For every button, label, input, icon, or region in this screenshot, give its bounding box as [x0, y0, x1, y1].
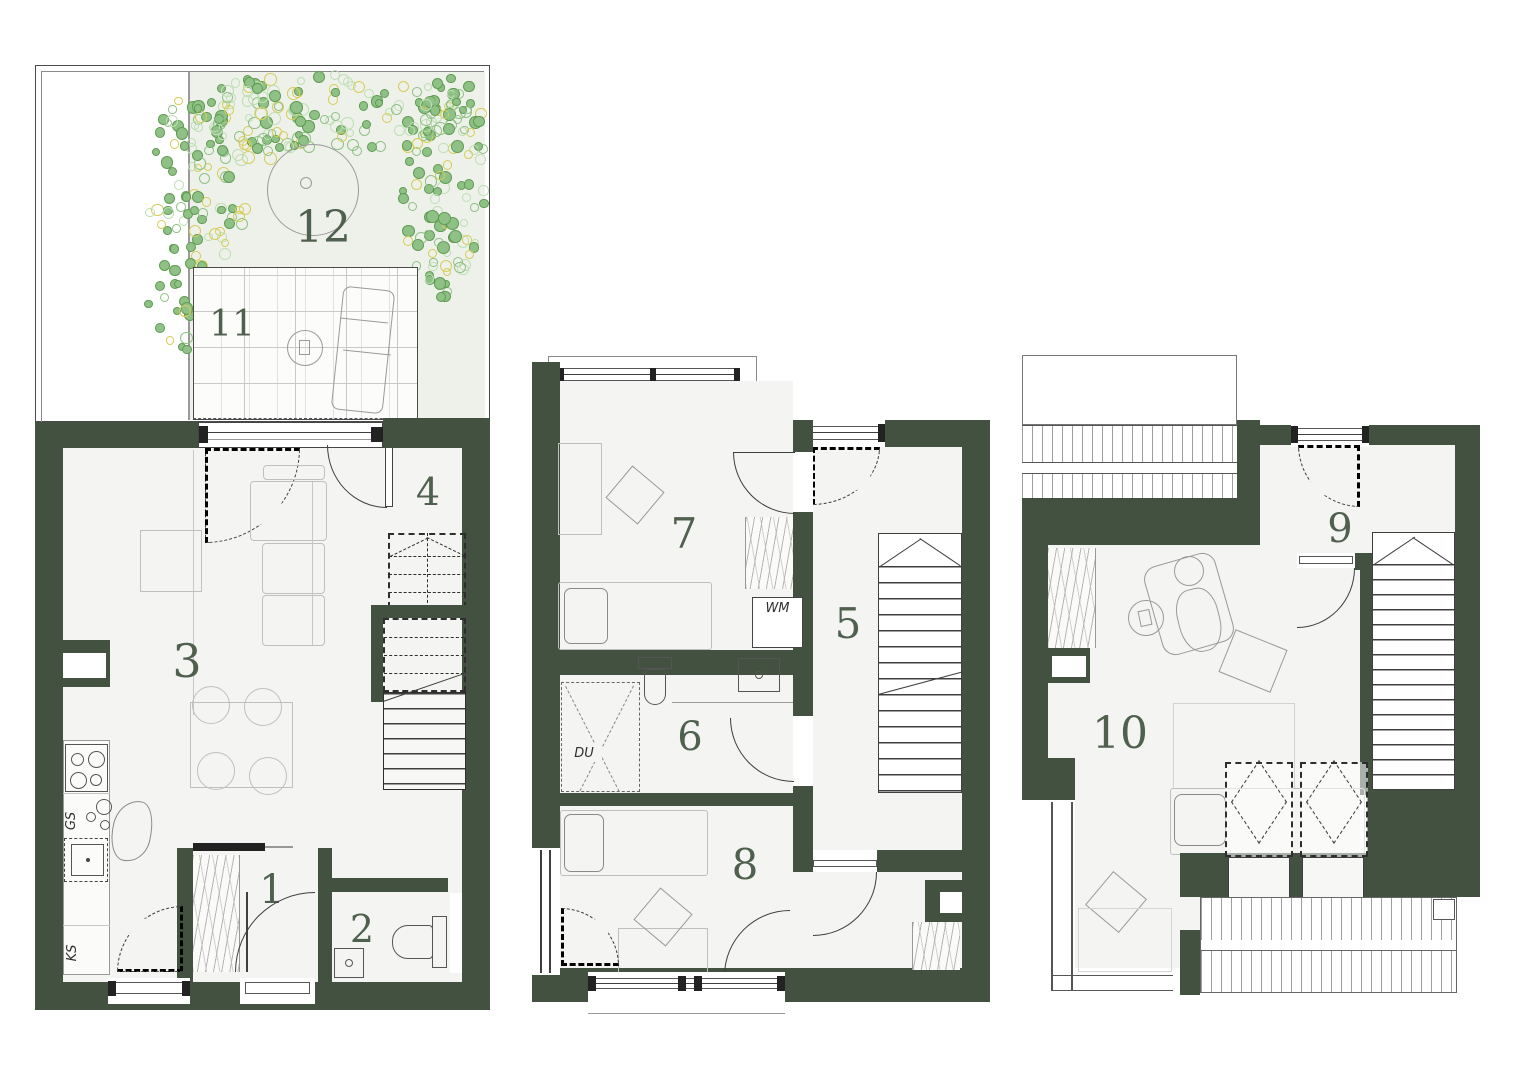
- stair-upper-tread-2: [389, 574, 465, 575]
- sf-stairs-left-wall: [1360, 562, 1372, 795]
- label-dishwasher: GS: [54, 803, 88, 839]
- label-shower: DU: [566, 744, 602, 762]
- sf-room9-window-midline: [1297, 434, 1363, 435]
- sf-bottom-left-wall-bit: [1180, 930, 1200, 995]
- label-room-7: 7: [668, 508, 700, 560]
- label-room-12: 12: [292, 203, 354, 253]
- floor-plan-drawing: 12 11 4 GS KS: [0, 0, 1529, 1080]
- label-room-2: 2: [348, 906, 376, 952]
- sf-left-wall: [1022, 500, 1048, 800]
- stair-lower-dtread-2: [384, 655, 464, 656]
- dining-chair-1: [192, 686, 230, 724]
- dining-chair-2: [244, 688, 282, 726]
- mf-room8-pillow: [564, 814, 604, 872]
- sf-right-wall: [1455, 425, 1480, 897]
- mf-stairs-treads: [879, 566, 961, 792]
- sf-balcony-rail-2: [1071, 802, 1073, 990]
- kitchen-counter-div-2: [63, 925, 110, 926]
- stair-lower-dtread-1: [384, 637, 464, 638]
- wc-sink-drain: [345, 959, 353, 967]
- mf-toilet-tank: [638, 657, 672, 669]
- stair-upper-tread-3: [389, 592, 465, 593]
- wc-right-niche: [450, 893, 462, 973]
- mf-toilet-bowl: [644, 669, 666, 705]
- sofa-cushion-1: [262, 543, 325, 594]
- sofa-back-line: [312, 482, 313, 645]
- sf-room10-wardrobe: [1048, 548, 1096, 648]
- mf-room8-wardrobe: [912, 922, 960, 970]
- hall-wardrobe: [193, 855, 240, 972]
- mf-wall-room6-bottom: [560, 793, 810, 806]
- mf-right-wall: [962, 420, 990, 1002]
- wall-above-room-4: [383, 418, 490, 448]
- sf-roof-bottom-band-2: [1201, 950, 1456, 992]
- mf-room5-window-block-r: [878, 424, 885, 442]
- mf-french-window-line-1: [540, 850, 542, 973]
- sofa-headrest: [263, 465, 325, 480]
- terrace-door-glazing-line2: [200, 439, 381, 440]
- sf-balcony-bottom-line-1: [1051, 975, 1173, 976]
- mf-vanity-line: [672, 702, 793, 703]
- sf-left-wall-step: [1048, 758, 1075, 800]
- dining-chair-3: [197, 752, 235, 790]
- sf-balcony-bottom-line-2: [1051, 990, 1173, 991]
- sf-balcony-rail-1: [1051, 802, 1053, 990]
- dining-chair-4: [249, 757, 287, 795]
- label-room-5: 5: [832, 598, 864, 650]
- mf-room6-door-opening: [793, 716, 813, 786]
- label-room-11: 11: [212, 303, 252, 347]
- stair-side-wall-stub: [371, 605, 383, 702]
- label-fridge: KS: [55, 935, 89, 971]
- mf-room7-desk: [558, 443, 602, 535]
- sf-stairs-treads: [1373, 564, 1454, 794]
- sf-bottom-niche: [1433, 899, 1455, 920]
- kitchen-sink-knob-2: [100, 820, 110, 830]
- sf-left-niche-inset: [1052, 656, 1086, 677]
- mf-room5-window: [810, 426, 881, 440]
- garden-tree-trunk: [300, 177, 312, 189]
- sofa-cushion-2: [262, 595, 325, 646]
- mf-bw-block-1: [588, 976, 596, 991]
- garden-divider-line: [188, 72, 190, 420]
- sf-room10-mat: [1078, 908, 1172, 972]
- coffee-table: [140, 530, 202, 592]
- label-washing-machine: WM: [752, 600, 803, 616]
- sf-roof-bottom-band-1: [1201, 898, 1456, 940]
- mf-bottom-balcony-slab: [588, 1002, 785, 1014]
- mf-right-niche-inset: [940, 892, 962, 913]
- mf-bottom-window-midline: [594, 983, 780, 984]
- hall-door-sill-frame: [245, 982, 310, 994]
- sf-roof-band-2: [1022, 473, 1240, 500]
- label-room-4: 4: [408, 468, 448, 516]
- mf-room7-window-midline: [560, 374, 738, 375]
- mf-room7-window-block-m: [650, 368, 656, 381]
- dishwasher-dot: [86, 858, 90, 862]
- stair-upper-centerline: [427, 533, 428, 608]
- sf-roof-band-1: [1022, 425, 1240, 463]
- cooktop-burner-4: [90, 774, 102, 786]
- toilet-tank: [432, 916, 447, 968]
- terrace-door-frame-block-right: [371, 427, 383, 442]
- hall-closet-rod: [193, 843, 265, 851]
- entry-sill-block-left: [108, 981, 116, 996]
- sf-room10-top-wall: [1022, 498, 1262, 545]
- sf-dormer-outline: [1022, 355, 1237, 425]
- terrace-side-table-cup: [299, 340, 310, 355]
- mf-room7-pillow: [564, 588, 608, 644]
- wall-wc-top: [332, 878, 448, 892]
- label-room-6: 6: [674, 712, 706, 762]
- label-room-9: 9: [1324, 504, 1356, 554]
- mf-french-window: [532, 848, 560, 975]
- mf-wall-landing-room8: [877, 850, 962, 872]
- sf-rw-block-l: [1291, 426, 1298, 443]
- label-room-3: 3: [163, 633, 211, 689]
- stair-lower-dtread-3: [384, 673, 464, 674]
- mf-bw-block-4: [777, 976, 785, 991]
- toilet-bowl: [392, 925, 433, 959]
- cooktop-burner-2: [88, 751, 105, 768]
- sf-room10-pillow: [1174, 794, 1226, 846]
- mf-french-window-line-2: [549, 850, 551, 973]
- sofa-chaise: [250, 481, 327, 541]
- terrace-door-glazing-line: [200, 432, 381, 433]
- mf-room7-window-block-r: [734, 368, 740, 381]
- mf-bw-block-3: [694, 976, 702, 991]
- mf-room5-window-midline: [812, 432, 879, 433]
- terrace-door-frame-block-left: [199, 426, 208, 443]
- cooktop-burner-3: [70, 772, 87, 789]
- mf-room8-door-leaf: [813, 860, 877, 867]
- wall-hall-wc-stub: [318, 848, 332, 982]
- mf-bath-sink-drain: [755, 671, 763, 679]
- mf-room7-door-opening: [793, 452, 813, 512]
- stair-upper-tread-1: [389, 556, 465, 557]
- entry-door-leaf-dashed: [117, 971, 183, 972]
- entry-door-sill-frame: [113, 982, 185, 994]
- label-room-10: 10: [1090, 708, 1150, 760]
- sf-person-head: [1174, 556, 1204, 586]
- sf-room9-door-sill: [1299, 556, 1353, 564]
- cooktop-burner-1: [71, 753, 84, 766]
- sf-rw-block-r: [1362, 426, 1369, 443]
- kitchen-sink-faucet: [96, 799, 112, 815]
- hall-closet-rod-ext: [265, 846, 293, 848]
- stair-lower-flight-solid: [383, 692, 466, 790]
- stair-mid-wall: [383, 605, 466, 618]
- mf-room7-wardrobe: [745, 517, 793, 589]
- kitchen-counter-div-1: [63, 793, 110, 794]
- entry-sill-block-right: [182, 981, 190, 996]
- label-room-8: 8: [729, 840, 761, 890]
- wall-niche-inset: [63, 653, 106, 678]
- mf-bw-block-2: [678, 976, 686, 991]
